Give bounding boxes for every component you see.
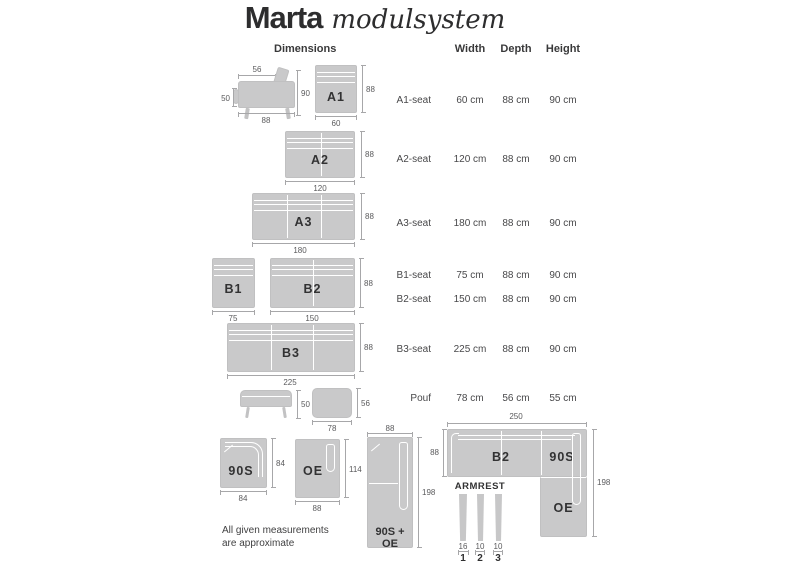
row-label: B1-seat bbox=[371, 270, 431, 281]
dim-line bbox=[357, 388, 358, 418]
dim-line bbox=[493, 551, 503, 552]
dim-line bbox=[367, 433, 413, 434]
dim-line bbox=[475, 551, 485, 552]
dim-line bbox=[220, 491, 267, 492]
dim-right: 56 bbox=[361, 399, 370, 408]
dim-right: 198 bbox=[422, 488, 435, 497]
row-label: B3-seat bbox=[371, 344, 431, 355]
row-height: 90 cm bbox=[533, 294, 593, 305]
dim-line bbox=[458, 551, 469, 552]
row-height: 90 cm bbox=[533, 344, 593, 355]
dim-line bbox=[227, 375, 355, 376]
module-shape: A3 bbox=[252, 193, 355, 240]
module-label: A3 bbox=[253, 215, 354, 229]
dim-bottom: 84 bbox=[233, 494, 253, 503]
dim-line bbox=[418, 437, 419, 548]
seam bbox=[214, 265, 253, 266]
seam bbox=[242, 396, 290, 397]
dim-right: 114 bbox=[349, 465, 362, 474]
module-shape: B3 bbox=[227, 323, 355, 372]
module-shape: A2 bbox=[285, 131, 355, 178]
seam bbox=[317, 76, 355, 77]
armrest-strip bbox=[495, 494, 502, 541]
armrest-title: ARMREST bbox=[450, 481, 510, 492]
dim-right: 88 bbox=[366, 85, 375, 94]
title-suffix: modulsystem bbox=[331, 5, 505, 35]
seam bbox=[317, 82, 355, 83]
dim-line bbox=[360, 323, 361, 372]
dim-line bbox=[315, 116, 357, 117]
dim-line bbox=[272, 438, 273, 488]
dim-left: 88 bbox=[424, 448, 439, 457]
seam bbox=[229, 334, 353, 335]
leg-shape bbox=[282, 407, 287, 418]
seam bbox=[287, 138, 353, 139]
corner-seam bbox=[371, 444, 380, 452]
dim-line bbox=[312, 421, 352, 422]
dim-line bbox=[238, 75, 276, 76]
dim-right: 84 bbox=[276, 459, 285, 468]
brand-name: Marta bbox=[245, 0, 323, 35]
seam bbox=[214, 275, 253, 276]
measurements-note: All given measurements are approximate bbox=[222, 524, 329, 550]
armrest-outline bbox=[399, 442, 408, 510]
armrest-index: 2 bbox=[470, 553, 490, 564]
row-label: A2-seat bbox=[371, 154, 431, 165]
dim-right: 88 bbox=[365, 150, 374, 159]
seam bbox=[214, 269, 253, 270]
module-shape: OE bbox=[295, 439, 340, 498]
module-label: A1 bbox=[316, 90, 356, 104]
dim-line bbox=[297, 70, 298, 116]
dim-bottom: 78 bbox=[322, 424, 342, 433]
dim-line bbox=[252, 243, 355, 244]
armrest-outline bbox=[572, 433, 581, 505]
dim-line bbox=[295, 501, 340, 502]
pouf-body-shape bbox=[240, 390, 292, 407]
dim-line bbox=[361, 131, 362, 178]
seam bbox=[254, 204, 353, 205]
row-label: Pouf bbox=[371, 393, 431, 404]
module-label: 90S bbox=[225, 464, 257, 478]
module-label: B3 bbox=[228, 346, 354, 360]
dim-line bbox=[447, 423, 587, 424]
module-shape: 90S + OE bbox=[367, 437, 413, 548]
dim-bottom: 60 bbox=[326, 119, 346, 128]
seam bbox=[458, 435, 575, 436]
dim-right: 90 bbox=[301, 89, 310, 98]
page-title: Martamodulsystem bbox=[0, 0, 750, 42]
seam bbox=[229, 340, 353, 341]
armrest-size: 10 bbox=[470, 542, 490, 551]
module-label: B1 bbox=[213, 282, 254, 296]
dim-line bbox=[443, 429, 444, 477]
dim-line bbox=[285, 181, 355, 182]
armrest-index: 3 bbox=[488, 553, 508, 564]
dim-line bbox=[360, 258, 361, 308]
dim-bottom: 225 bbox=[276, 378, 304, 387]
row-label: A1-seat bbox=[371, 95, 431, 106]
dim-line bbox=[233, 88, 234, 107]
seam bbox=[229, 330, 353, 331]
row-label: A3-seat bbox=[371, 218, 431, 229]
seat-shape bbox=[238, 81, 295, 108]
leg-shape bbox=[245, 407, 250, 418]
dim-bottom: 120 bbox=[306, 184, 334, 193]
product-sheet: Martamodulsystem Dimensions Width Depth … bbox=[0, 0, 792, 566]
module-label-b2: B2 bbox=[468, 450, 534, 464]
row-height: 90 cm bbox=[533, 218, 593, 229]
module-label: OE bbox=[296, 464, 330, 478]
dim-right: 88 bbox=[364, 343, 373, 352]
module-shape bbox=[312, 388, 352, 418]
seam bbox=[458, 439, 571, 440]
module-shape: B2 bbox=[270, 258, 355, 308]
seam bbox=[254, 210, 353, 211]
dim-top: 250 bbox=[502, 412, 530, 421]
dim-line bbox=[212, 311, 255, 312]
dim-bottom: 88 bbox=[307, 504, 327, 513]
dim-right: 88 bbox=[365, 212, 374, 221]
note-line-2: are approximate bbox=[222, 537, 329, 550]
armrest-size: 10 bbox=[488, 542, 508, 551]
dim-line bbox=[362, 65, 363, 113]
seam bbox=[317, 72, 355, 73]
dim-line bbox=[345, 439, 346, 498]
dim-top: 56 bbox=[247, 65, 267, 74]
note-line-1: All given measurements bbox=[222, 524, 329, 537]
seam bbox=[369, 483, 398, 484]
module-shape: A1 bbox=[315, 65, 357, 113]
module-shape: 90S bbox=[220, 438, 267, 488]
seam bbox=[287, 142, 353, 143]
seam bbox=[287, 148, 353, 149]
dim-bottom: 150 bbox=[298, 314, 326, 323]
dim-bottom: 88 bbox=[256, 116, 276, 125]
module-label: B2 bbox=[271, 282, 354, 296]
module-label: A2 bbox=[286, 153, 354, 167]
dim-line bbox=[297, 390, 298, 419]
dim-line bbox=[593, 429, 594, 537]
dim-bottom: 180 bbox=[286, 246, 314, 255]
dim-right: 88 bbox=[364, 279, 373, 288]
header-height: Height bbox=[533, 43, 593, 55]
module-label: 90S + OE bbox=[368, 526, 412, 550]
dim-line bbox=[270, 311, 355, 312]
dim-line bbox=[238, 113, 295, 114]
seam bbox=[254, 200, 353, 201]
armrest-strip bbox=[459, 494, 467, 541]
row-height: 55 cm bbox=[533, 393, 593, 404]
header-dimensions: Dimensions bbox=[274, 43, 336, 55]
dim-right: 50 bbox=[301, 400, 310, 409]
dim-left: 50 bbox=[216, 94, 230, 103]
row-label: B2-seat bbox=[371, 294, 431, 305]
dim-right: 198 bbox=[597, 478, 610, 487]
dim-line bbox=[361, 193, 362, 240]
armrest-strip bbox=[477, 494, 484, 541]
sofa-body-shape: B2 90S bbox=[447, 429, 587, 477]
dim-bottom: 75 bbox=[223, 314, 243, 323]
module-shape: B1 bbox=[212, 258, 255, 308]
row-height: 90 cm bbox=[533, 270, 593, 281]
row-height: 90 cm bbox=[533, 154, 593, 165]
row-height: 90 cm bbox=[533, 95, 593, 106]
dim-top: 88 bbox=[380, 424, 400, 433]
